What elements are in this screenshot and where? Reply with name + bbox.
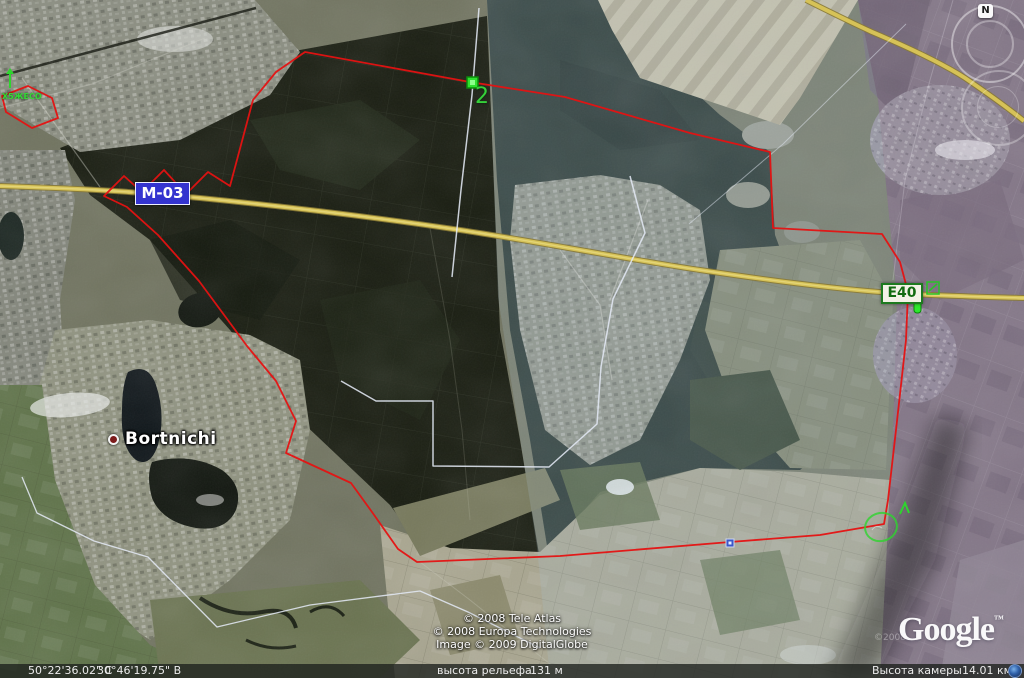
satellite-imagery <box>0 0 1024 678</box>
mini-blue-marker[interactable] <box>726 539 734 547</box>
navigation-control[interactable]: N <box>948 0 1024 150</box>
status-elevation-value: 131 м <box>530 664 563 678</box>
google-logo-text: Google <box>898 611 994 648</box>
green-marker-2-label: 2 <box>475 84 489 109</box>
placemark-bortnichi[interactable]: Bortnichi <box>108 429 217 449</box>
map-copyright: © 2008 Tele Atlas © 2008 Europa Technolo… <box>362 612 662 651</box>
road-badge-e40: Е40 <box>881 283 923 304</box>
map-viewport[interactable]: М-03 Е40 Bortnichi Х5ЖЕСО 2 N © 2008 Tel… <box>0 0 1024 678</box>
compass-north-button[interactable]: N <box>978 4 993 18</box>
status-elevation-label: высота рельефа <box>437 664 532 678</box>
film-grain <box>0 0 1024 678</box>
status-camera-label: Высота камеры <box>872 664 962 678</box>
status-camera-value: 14.01 км <box>962 664 1012 678</box>
green-marker-topleft-label: Х5ЖЕСО <box>2 92 42 101</box>
place-dot-icon <box>108 434 119 445</box>
place-label: Bortnichi <box>125 429 217 449</box>
road-badge-m03: М-03 <box>135 182 190 205</box>
move-ring-inner[interactable] <box>977 86 1019 128</box>
look-ring-inner[interactable] <box>966 20 1014 68</box>
status-longitude: 30°46'19.75" В <box>97 664 181 678</box>
copyright-line3: Image © 2009 DigitalGlobe <box>362 638 662 651</box>
google-logo-tm: ™ <box>994 614 1004 625</box>
google-watermark: Google™ <box>898 611 1004 649</box>
streaming-indicator-icon <box>1008 664 1022 678</box>
copyright-line2: © 2008 Europa Technologies <box>362 625 662 638</box>
copyright-line1: © 2008 Tele Atlas <box>362 612 662 625</box>
status-bar: 50°22'36.02" С 30°46'19.75" В высота рел… <box>0 664 1024 678</box>
